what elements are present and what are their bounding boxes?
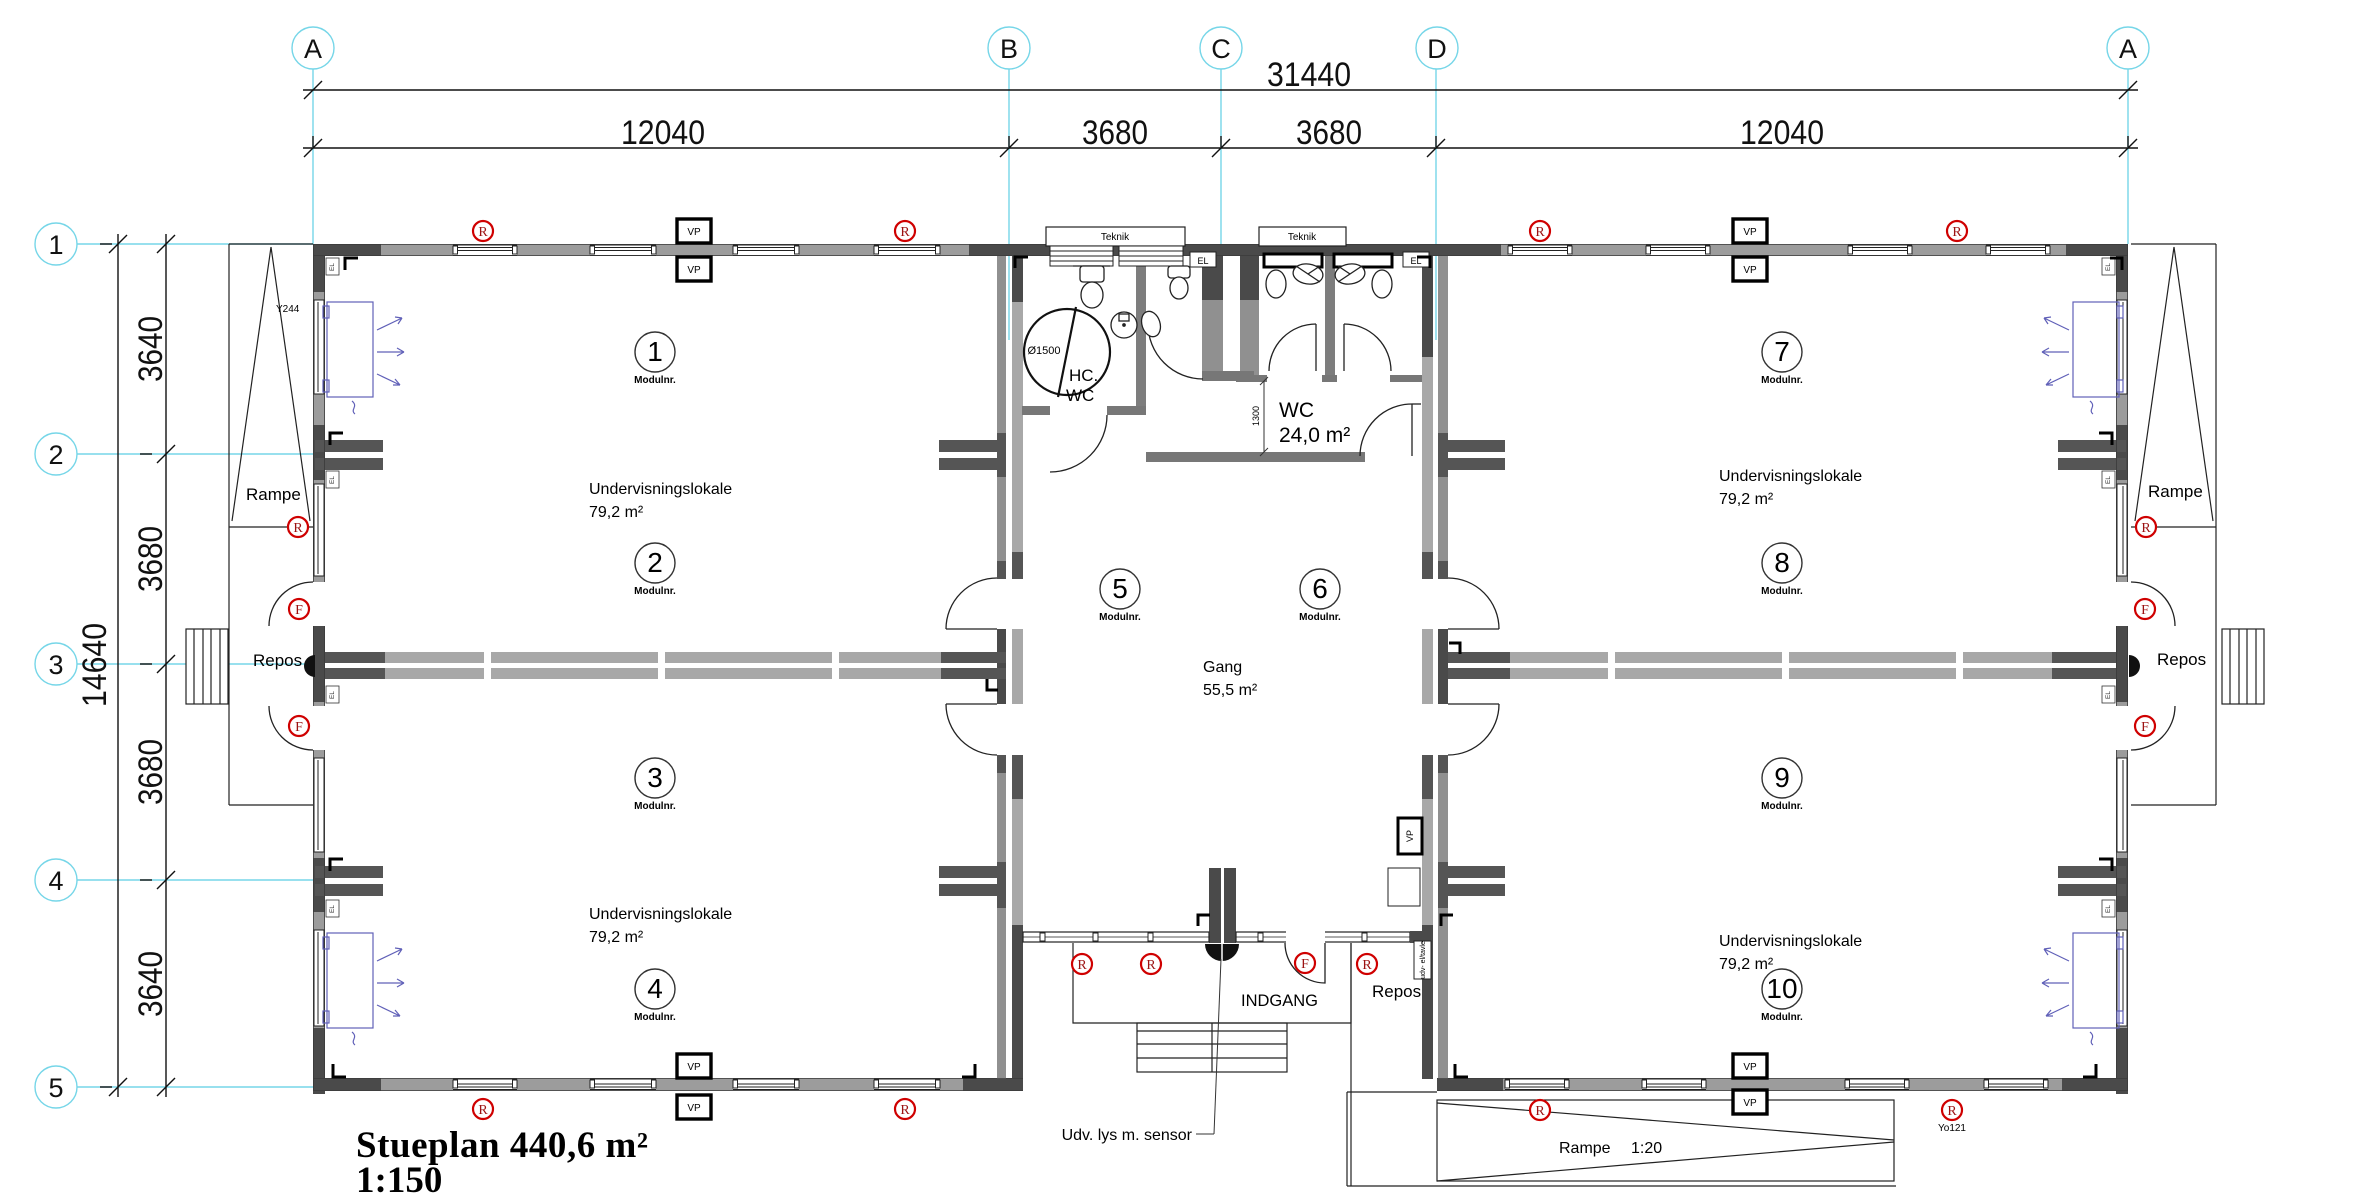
svg-text:1: 1 (48, 230, 63, 260)
svg-text:R: R (1535, 225, 1545, 240)
svg-text:Modulnr.: Modulnr. (634, 801, 676, 812)
svg-text:Undervisningslokale: Undervisningslokale (589, 481, 732, 498)
svg-text:3640: 3640 (132, 951, 170, 1017)
svg-text:10: 10 (1766, 973, 1797, 1004)
svg-text:14640: 14640 (76, 623, 114, 707)
svg-text:INDGANG: INDGANG (1241, 992, 1318, 1010)
svg-text:VP: VP (1743, 1098, 1757, 1109)
svg-text:7: 7 (1774, 336, 1790, 367)
svg-text:R: R (293, 521, 303, 536)
svg-text:12040: 12040 (621, 114, 705, 152)
svg-text:79,2 m²: 79,2 m² (589, 504, 644, 521)
svg-text:VP: VP (1743, 265, 1757, 276)
svg-text:Repos: Repos (1372, 982, 1421, 1001)
svg-text:1300: 1300 (1251, 406, 1261, 426)
svg-text:Modulnr.: Modulnr. (634, 586, 676, 597)
svg-text:B: B (1000, 34, 1018, 64)
svg-text:VP: VP (1405, 830, 1415, 842)
svg-text:EL: EL (329, 263, 336, 271)
svg-text:EL: EL (2105, 263, 2112, 271)
svg-text:3640: 3640 (132, 316, 170, 382)
svg-text:R: R (1077, 958, 1087, 973)
svg-text:EL: EL (2105, 476, 2112, 484)
svg-text:VP: VP (687, 1062, 701, 1073)
svg-text:2: 2 (647, 547, 663, 578)
svg-text:Modulnr.: Modulnr. (1761, 1012, 1803, 1023)
svg-text:Y244: Y244 (276, 304, 300, 315)
svg-text:R: R (1952, 225, 1962, 240)
svg-text:1:20: 1:20 (1631, 1140, 1662, 1157)
svg-text:WC: WC (1279, 399, 1314, 422)
svg-text:9: 9 (1774, 762, 1790, 793)
svg-text:3680: 3680 (1296, 114, 1362, 152)
svg-text:VP: VP (687, 265, 701, 276)
svg-text:3680: 3680 (132, 526, 170, 592)
svg-text:R: R (1947, 1104, 1957, 1119)
svg-text:3680: 3680 (132, 739, 170, 805)
svg-text:5: 5 (48, 1073, 63, 1103)
svg-text:79,2 m²: 79,2 m² (589, 929, 644, 946)
svg-text:1: 1 (647, 336, 663, 367)
svg-text:R: R (1362, 958, 1372, 973)
svg-text:VP: VP (1743, 1062, 1757, 1073)
svg-text:EL: EL (2105, 691, 2112, 699)
svg-text:Teknik: Teknik (1101, 232, 1130, 243)
svg-text:F: F (2141, 603, 2149, 618)
svg-text:Modulnr.: Modulnr. (1099, 612, 1141, 623)
svg-text:F: F (1301, 957, 1309, 972)
svg-text:F: F (295, 720, 303, 735)
svg-text:Modulnr.: Modulnr. (1761, 801, 1803, 812)
svg-text:VP: VP (687, 1103, 701, 1114)
svg-text:Udv. lys m. sensor: Udv. lys m. sensor (1062, 1127, 1193, 1144)
svg-text:EL: EL (2105, 905, 2112, 913)
svg-text:31440: 31440 (1267, 56, 1351, 94)
svg-text:R: R (478, 1103, 488, 1118)
svg-text:Undervisningslokale: Undervisningslokale (589, 906, 732, 923)
svg-text:udv- el/tavle: udv- el/tavle (1420, 941, 1427, 979)
svg-text:Repos: Repos (253, 651, 302, 670)
svg-text:3: 3 (48, 650, 63, 680)
svg-text:Undervisningslokale: Undervisningslokale (1719, 933, 1862, 950)
svg-text:4: 4 (48, 866, 63, 896)
svg-text:Repos: Repos (2157, 650, 2206, 669)
svg-text:Modulnr.: Modulnr. (634, 375, 676, 386)
svg-text:R: R (1146, 958, 1156, 973)
svg-text:R: R (900, 1103, 910, 1118)
svg-text:HC.: HC. (1069, 366, 1098, 385)
svg-text:EL: EL (329, 691, 336, 699)
svg-text:VP: VP (687, 227, 701, 238)
svg-text:VP: VP (1743, 227, 1757, 238)
svg-text:4: 4 (647, 973, 663, 1004)
svg-text:R: R (478, 225, 488, 240)
svg-text:24,0 m²: 24,0 m² (1279, 424, 1350, 447)
svg-text:Teknik: Teknik (1288, 232, 1317, 243)
svg-text:79,2 m²: 79,2 m² (1719, 956, 1774, 973)
svg-text:R: R (1535, 1104, 1545, 1119)
svg-text:WC: WC (1066, 386, 1094, 405)
svg-text:12040: 12040 (1740, 114, 1824, 152)
svg-text:Rampe: Rampe (2148, 482, 2203, 501)
svg-text:Yo121: Yo121 (1938, 1123, 1966, 1134)
svg-text:Rampe: Rampe (1559, 1140, 1611, 1157)
svg-text:R: R (900, 225, 910, 240)
svg-text:3: 3 (647, 762, 663, 793)
svg-text:55,5 m²: 55,5 m² (1203, 682, 1258, 699)
svg-text:A: A (2119, 34, 2137, 64)
svg-text:Modulnr.: Modulnr. (1299, 612, 1341, 623)
svg-text:8: 8 (1774, 547, 1790, 578)
svg-text:Ø1500: Ø1500 (1027, 345, 1060, 357)
svg-text:Modulnr.: Modulnr. (1761, 375, 1803, 386)
svg-text:EL: EL (329, 476, 336, 484)
svg-text:Undervisningslokale: Undervisningslokale (1719, 468, 1862, 485)
svg-text:D: D (1427, 34, 1447, 64)
svg-text:R: R (2141, 521, 2151, 536)
svg-text:Gang: Gang (1203, 659, 1242, 676)
svg-text:C: C (1211, 34, 1231, 64)
svg-text:Modulnr.: Modulnr. (634, 1012, 676, 1023)
svg-text:5: 5 (1112, 573, 1128, 604)
svg-text:A: A (304, 34, 322, 64)
svg-text:3680: 3680 (1082, 114, 1148, 152)
svg-text:F: F (2141, 720, 2149, 735)
svg-text:1:150: 1:150 (356, 1160, 442, 1193)
svg-text:EL: EL (1197, 256, 1208, 266)
svg-text:EL: EL (329, 905, 336, 913)
svg-text:F: F (295, 603, 303, 618)
svg-text:Rampe: Rampe (246, 485, 301, 504)
svg-text:Modulnr.: Modulnr. (1761, 586, 1803, 597)
svg-text:2: 2 (48, 440, 63, 470)
svg-text:79,2 m²: 79,2 m² (1719, 491, 1774, 508)
svg-text:6: 6 (1312, 573, 1328, 604)
